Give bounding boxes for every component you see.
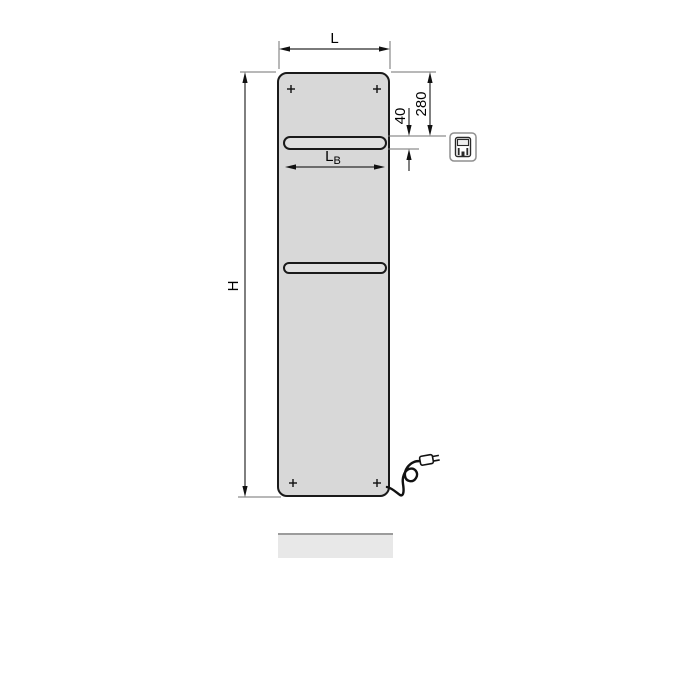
power-cable [387,453,440,495]
rail-extension-lines [388,136,446,149]
top-offset-dimension-label: 280 [413,82,431,126]
electric-control-icon [450,133,476,161]
rail-width-label-main: L [325,148,333,165]
rail-height-dimension-label: 40 [392,101,410,131]
dimension-linework [0,0,700,700]
mounting-screw-marks [287,85,381,487]
width-dimension-label: L [279,30,390,48]
diagram-canvas: L H LB 280 40 [0,0,700,700]
rail-width-dimension-label: LB [300,148,366,167]
height-dimension-label: H [225,268,243,304]
power-plug-icon [419,453,440,465]
rail-width-label-subscript: B [334,155,341,167]
height-dimension [238,72,281,497]
